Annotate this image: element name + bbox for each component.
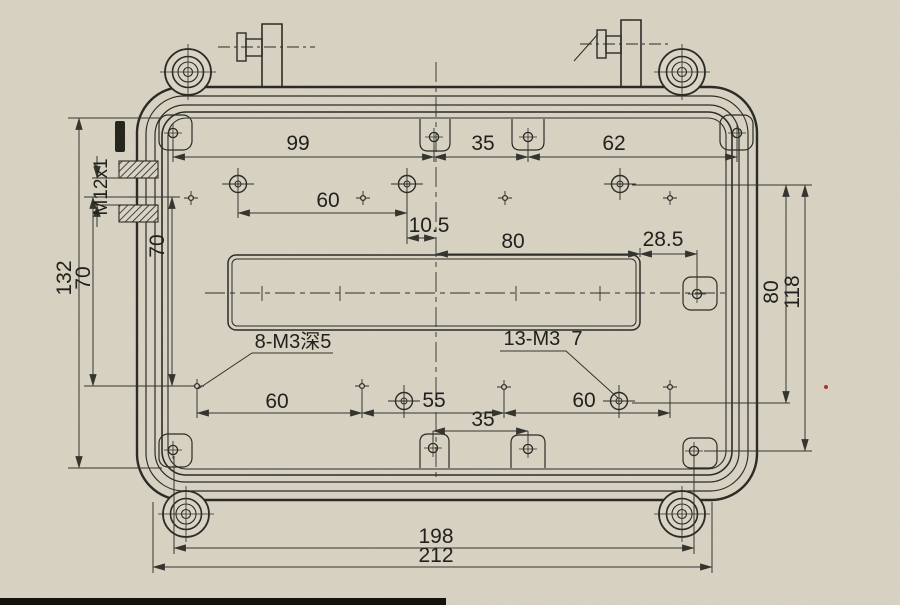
scan-black-strip (0, 598, 446, 605)
dim-bottom-60-left: 60 (265, 390, 288, 413)
dim-212: 212 (418, 544, 453, 567)
red-speck (824, 385, 828, 389)
callout-8-m3-depth5: 8-M3深5 (255, 330, 332, 353)
dim-70-outer: 70 (72, 266, 95, 289)
dim-upper-60: 60 (316, 189, 339, 212)
callout-13-m3-7: 13-M3 7 (504, 328, 583, 350)
dim-118: 118 (781, 275, 804, 308)
dim-99: 99 (286, 132, 309, 155)
dim-bottom-35: 35 (471, 408, 494, 431)
drawing-canvas: 9935626010.58028.5M12x17013270801188-M3深… (0, 0, 900, 605)
dim-bottom-60-right: 60 (572, 389, 595, 412)
dim-28-5: 28.5 (643, 228, 684, 251)
dim-80-vertical: 80 (760, 280, 783, 303)
dim-70-inner: 70 (146, 234, 169, 257)
callout-m12x1: M12x1 (91, 158, 112, 215)
dim-top-35: 35 (471, 132, 494, 155)
dim-10-5: 10.5 (409, 214, 450, 237)
dim-80-horizontal: 80 (501, 230, 524, 253)
scanned-drawing-page: 9935626010.58028.5M12x17013270801188-M3深… (0, 0, 900, 605)
dim-55: 55 (422, 389, 445, 412)
dim-62: 62 (602, 132, 625, 155)
gasket-mark (115, 121, 125, 152)
